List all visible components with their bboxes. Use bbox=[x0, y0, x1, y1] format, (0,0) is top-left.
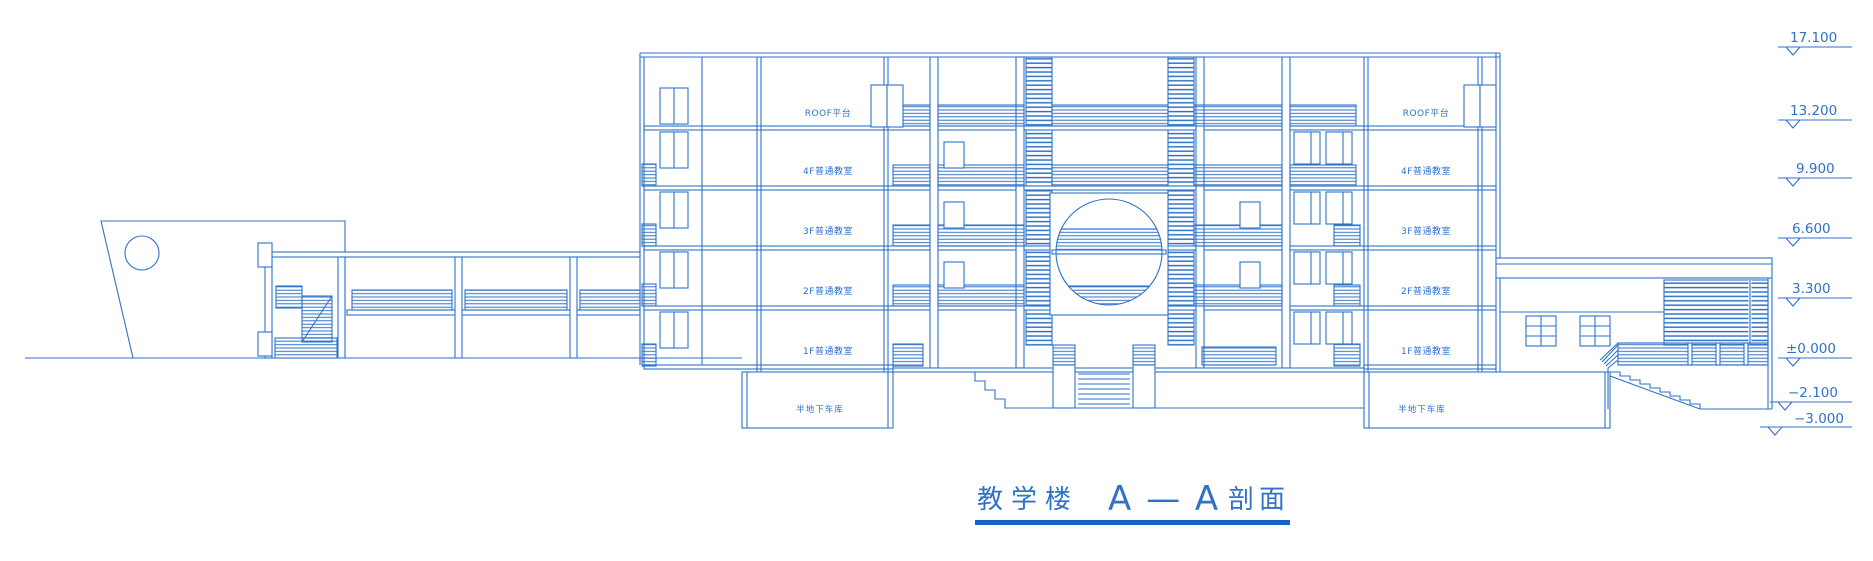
corridor-railing bbox=[465, 290, 567, 310]
entry-steps bbox=[975, 372, 1015, 408]
floor-label-3f-right: 3F普通教室 bbox=[1401, 225, 1451, 237]
corridor-railing bbox=[580, 290, 640, 310]
floor-label-bsmt-right: 半地下车库 bbox=[1398, 404, 1446, 415]
floor-label-4f-left: 4F普通教室 bbox=[803, 165, 853, 177]
svg-text:6.600: 6.600 bbox=[1792, 221, 1831, 237]
louver-shaft bbox=[1168, 57, 1194, 345]
elevation-marker-0000: ±0.000 bbox=[1778, 341, 1852, 366]
elevation-marker-6600: 6.600 bbox=[1778, 221, 1852, 246]
svg-text:−3.000: −3.000 bbox=[1794, 411, 1844, 427]
svg-text:17.100: 17.100 bbox=[1790, 30, 1837, 46]
balcony-rail bbox=[642, 284, 656, 306]
floor-label-3f-left: 3F普通教室 bbox=[803, 225, 853, 237]
elevation-marker-9900: 9.900 bbox=[1778, 161, 1852, 186]
floor-label-4f-right: 4F普通教室 bbox=[1401, 165, 1451, 177]
balcony-rail bbox=[642, 344, 656, 366]
louver-shaft bbox=[1026, 57, 1052, 345]
cad-canvas: ROOF平台 4F普通教室 3F普通教室 2F普通教室 1F普通教室 半地下车库… bbox=[0, 0, 1873, 561]
floor-label-bsmt-left: 半地下车库 bbox=[796, 404, 844, 415]
floor-label-roof-right: ROOF平台 bbox=[1403, 107, 1450, 119]
corridor-railing bbox=[352, 290, 452, 310]
svg-text:±0.000: ±0.000 bbox=[1786, 341, 1836, 357]
floor-label-1f-right: 1F普通教室 bbox=[1401, 345, 1451, 357]
floor-label-1f-left: 1F普通教室 bbox=[803, 345, 853, 357]
porch-pier bbox=[1053, 345, 1075, 365]
main-building bbox=[640, 53, 1610, 428]
entrance-area bbox=[893, 345, 1364, 408]
drawing-title: 教学楼 A — A 剖面 bbox=[975, 479, 1290, 525]
central-circle-feature bbox=[1050, 193, 1168, 315]
elevation-marker-17100: 17.100 bbox=[1778, 30, 1852, 55]
basement-boxes bbox=[742, 372, 1610, 428]
porch-pier bbox=[1133, 345, 1155, 365]
title-section-mark: A — A bbox=[1108, 479, 1220, 519]
balcony-rail bbox=[642, 164, 656, 186]
left-balcony-strip bbox=[642, 57, 702, 366]
title-suffix: 剖面 bbox=[1228, 485, 1290, 515]
svg-text:9.900: 9.900 bbox=[1796, 161, 1835, 177]
floor-label-2f-left: 2F普通教室 bbox=[803, 285, 853, 297]
left-classroom-walls bbox=[757, 57, 888, 372]
title-underline bbox=[975, 520, 1290, 525]
terrace-railing bbox=[1600, 343, 1768, 368]
title-building: 教学楼 bbox=[977, 485, 1079, 515]
annex-window-grid bbox=[1526, 316, 1610, 346]
elevation-marker-3300: 3.300 bbox=[1778, 281, 1852, 306]
elevation-marker-neg2100: −2.100 bbox=[1770, 385, 1852, 410]
elevation-markers: 17.100 13.200 9.900 6.600 3.300 ±0.000 −… bbox=[1760, 30, 1852, 435]
floor-label-roof-left: ROOF平台 bbox=[805, 107, 852, 119]
floor-label-2f-right: 2F普通教室 bbox=[1401, 285, 1451, 297]
section-drawing: ROOF平台 4F普通教室 3F普通教室 2F普通教室 1F普通教室 半地下车库… bbox=[0, 0, 1873, 561]
elevation-marker-13200: 13.200 bbox=[1778, 103, 1852, 128]
elevation-marker-neg3000: −3.000 bbox=[1760, 411, 1852, 435]
porch-steps bbox=[1078, 374, 1130, 404]
svg-text:13.200: 13.200 bbox=[1790, 103, 1837, 119]
svg-text:−2.100: −2.100 bbox=[1788, 385, 1838, 401]
exterior-stair bbox=[1608, 368, 1772, 409]
balcony-rail bbox=[642, 224, 656, 246]
annex-louvers bbox=[1664, 280, 1768, 345]
stair-hatch bbox=[276, 286, 302, 308]
svg-text:3.300: 3.300 bbox=[1792, 281, 1831, 297]
